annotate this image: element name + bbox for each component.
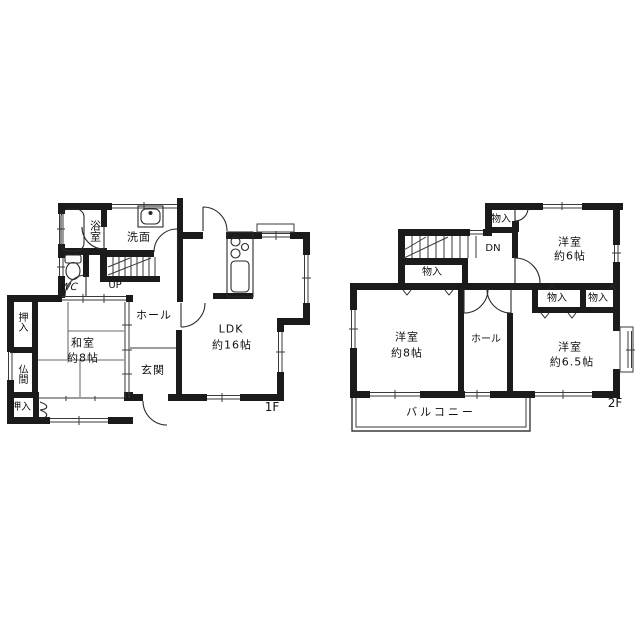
bedroom8-door-arc — [464, 289, 488, 313]
stairs-down-label: DN — [485, 244, 500, 254]
bedroom6-door-arc — [515, 258, 540, 283]
entrance-door-arc — [143, 401, 167, 425]
stairs-up — [108, 257, 155, 276]
closet-top-label: 物入 — [491, 215, 511, 225]
closet-lower-label: 押入 — [11, 403, 31, 413]
washitsu-size-label: 約8帖 — [67, 353, 99, 364]
floor1-label: 1F — [265, 401, 280, 413]
toilet-icon — [65, 255, 81, 280]
closet-right-label: 物入 — [588, 294, 608, 304]
second-floor-walls — [350, 203, 623, 398]
closet-upper-label: 押入 — [16, 312, 26, 332]
washroom-label: 洗面 — [127, 232, 151, 243]
tatami-lines — [38, 302, 124, 397]
closet-stairs-label: 物入 — [422, 268, 442, 278]
bedroom65-size-label: 約6.5帖 — [550, 357, 595, 368]
ldk-label: LDK — [219, 324, 244, 335]
bedroom8-size-label: 約8帖 — [391, 348, 423, 359]
washroom-sink-icon — [138, 206, 163, 227]
washroom-door-arc — [154, 229, 178, 252]
bedroom8-label: 洋室 — [395, 332, 419, 343]
floorplan-drawing — [0, 0, 640, 640]
ldk-size-label: 約16帖 — [212, 340, 252, 351]
ldk-door-arc — [181, 303, 205, 327]
bedroom6-size-label: 約6帖 — [554, 251, 586, 262]
bay-window — [620, 327, 635, 372]
washitsu-corner-door — [40, 402, 47, 419]
balcony-label: バルコニー — [406, 407, 476, 418]
bath-label: 浴室 — [90, 220, 101, 242]
hall1-label: ホール — [136, 310, 172, 321]
entrance-label: 玄関 — [141, 365, 165, 376]
stairs-down — [404, 236, 476, 258]
wc-label: WC — [60, 283, 78, 293]
back-door-arc — [203, 207, 227, 231]
hall2-label: ホール — [471, 335, 501, 345]
closet-left-label: 物入 — [547, 294, 567, 304]
floor2-label: 2F — [608, 397, 623, 409]
stairs-up-label: UP — [108, 281, 121, 291]
altar-room-label: 仏間 — [16, 364, 26, 384]
kitchen-counter-icon — [227, 232, 253, 297]
bedroom65-label: 洋室 — [558, 342, 582, 353]
washitsu-label: 和室 — [71, 338, 95, 349]
floorplan-canvas: 浴室 洗面 WC UP ホール LDK 約16帖 和室 約8帖 押入 仏間 押入… — [0, 0, 640, 640]
bedroom65-door-arc — [487, 289, 511, 313]
bedroom6-label: 洋室 — [558, 237, 582, 248]
